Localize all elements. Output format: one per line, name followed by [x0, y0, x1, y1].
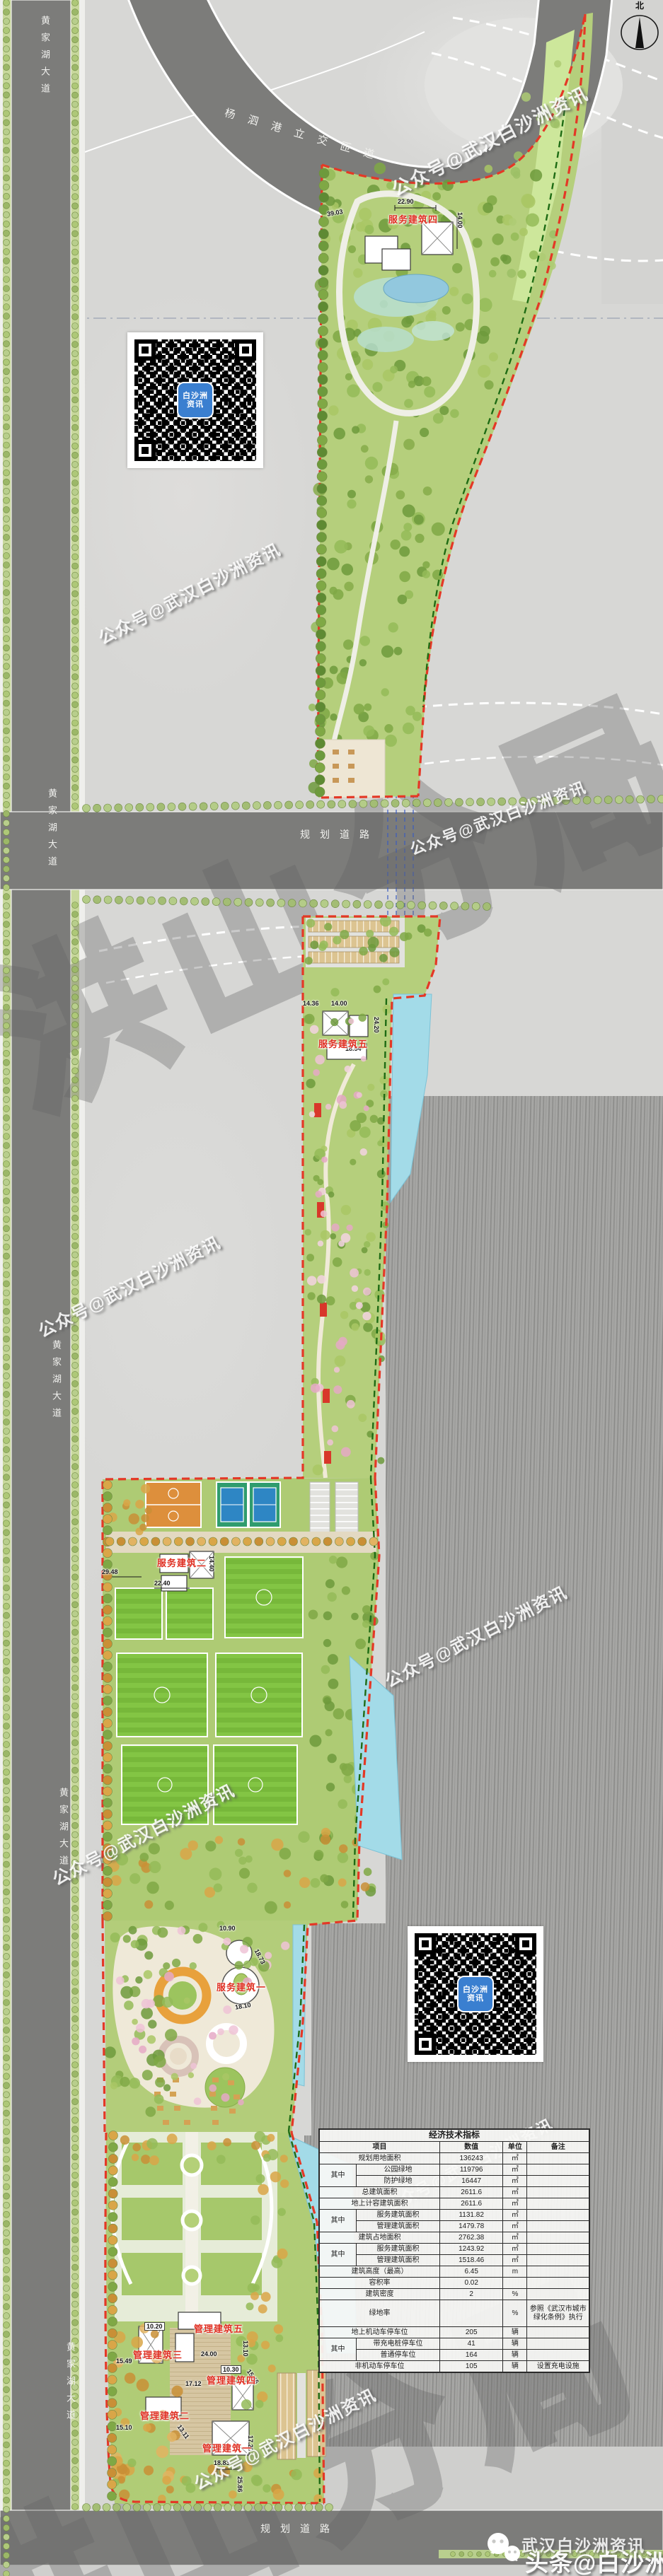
table-row: 管理建筑面积1518.46㎡	[319, 2255, 589, 2266]
dim-label: 14.00	[456, 212, 463, 228]
table-row: 其中服务建筑面积1131.82㎡	[319, 2210, 589, 2221]
table-row: 总建筑面积2611.6㎡	[319, 2187, 589, 2198]
qr-code-top: 白沙洲 资讯	[127, 332, 263, 468]
section-north-park	[309, 13, 593, 798]
dim-label: 18.83	[214, 2459, 230, 2466]
dim-label: 13.10	[242, 2341, 249, 2357]
col-header: 数值	[440, 2142, 503, 2153]
road-label-planned-2: 规划道路	[260, 2522, 340, 2536]
label-mgmt-building-1: 管理建筑一	[202, 2441, 252, 2454]
dim-label: 15.49	[116, 2358, 132, 2365]
col-header: 项目	[319, 2142, 440, 2153]
dim-label: 10.20	[144, 2322, 165, 2331]
qr-center-badge: 白沙洲 资讯	[457, 1976, 494, 2012]
col-header: 备注	[527, 2142, 589, 2153]
dim-label: 15.10	[116, 2424, 132, 2431]
qr-code-bottom: 白沙洲 资讯	[408, 1926, 543, 2062]
tip-plaza	[320, 740, 385, 798]
qr-finder-icon	[134, 339, 156, 361]
dim-label: 22.40	[154, 1580, 171, 1587]
table-row: 绿地率%参照《武汉市城市绿化条例》执行	[319, 2300, 589, 2327]
north-label: 北	[618, 1, 661, 11]
qr-finder-icon	[515, 1933, 536, 1954]
qr-badge-text: 白沙洲	[183, 392, 208, 400]
road-label-huangjiahu-4: 黄家湖大道	[57, 1788, 70, 1872]
dim-label: 24.20	[373, 1017, 380, 1033]
table-row: 地上机动车停车位205辆	[319, 2327, 589, 2338]
tennis-courts	[217, 1482, 280, 1527]
road-label-huangjiahu-5: 黄家湖大道	[64, 2342, 77, 2427]
road-label-huangjiahu-1: 黄家湖大道	[38, 16, 52, 100]
label-mgmt-building-4: 管理建筑四	[207, 2373, 256, 2386]
table-title: 经济技术指标	[319, 2129, 589, 2142]
dim-label: 17.12	[185, 2380, 202, 2387]
road-label-huangjiahu-2: 黄家湖大道	[45, 788, 59, 873]
label-service-building-2: 服务建筑二	[157, 1556, 207, 1569]
table-row: 其中公园绿地119796㎡	[319, 2164, 589, 2176]
table-row: 容积率0.02	[319, 2278, 589, 2289]
qr-finder-icon	[235, 339, 256, 361]
table-row: 建筑密度2%	[319, 2289, 589, 2300]
table-row: 其中服务建筑面积1243.92㎡	[319, 2244, 589, 2255]
pond	[384, 274, 449, 303]
qr-badge-text: 资讯	[187, 400, 204, 409]
north-compass: 北	[618, 1, 661, 55]
table-row: 建筑高度（最高）6.45m	[319, 2266, 589, 2278]
qr-badge-text: 白沙洲	[463, 1986, 488, 1994]
wechat-icon	[484, 2531, 524, 2569]
road-huangjiahu	[11, 0, 71, 2576]
table-row: 防护绿地16447㎡	[319, 2176, 589, 2187]
label-mgmt-building-2: 管理建筑二	[140, 2408, 190, 2422]
verge-right	[71, 0, 79, 2576]
qr-badge-text: 资讯	[467, 1994, 484, 2003]
col-header: 单位	[503, 2142, 527, 2153]
table-row: 建筑占地面积2762.38㎡	[319, 2232, 589, 2244]
compass-icon	[620, 11, 659, 52]
watermark-toutiao: 头条@白沙洲	[525, 2544, 663, 2576]
dim-label: 14.40	[208, 1556, 215, 1572]
master-plan-canvas: 洪山分局 洪山分局	[0, 0, 663, 2576]
indicator-table: 经济技术指标 项目 数值 单位 备注 规划用地面积136243㎡ 其中公园绿地1…	[318, 2128, 590, 2373]
dim-label: 24.00	[201, 2350, 217, 2358]
dim-label: 25.86	[236, 2476, 243, 2493]
table-row: 非机动车停车位105辆设置充电设施	[319, 2361, 589, 2373]
qr-finder-icon	[134, 440, 156, 461]
table-row: 其中带充电桩停车位41辆	[319, 2338, 589, 2350]
table-row: 管理建筑面积1479.78㎡	[319, 2221, 589, 2232]
label-mgmt-building-5: 管理建筑五	[194, 2321, 243, 2335]
dim-label: 29.48	[102, 1568, 118, 1575]
label-service-building-4: 服务建筑四	[388, 212, 438, 226]
qr-finder-icon	[415, 2034, 436, 2055]
dim-label: 22.90	[398, 198, 414, 205]
label-service-building-5: 服务建筑五	[318, 1037, 368, 1050]
qr-finder-icon	[415, 1933, 436, 1954]
table-row: 普通停车位164辆	[319, 2350, 589, 2361]
road-label-huangjiahu-3: 黄家湖大道	[50, 1340, 63, 1425]
qr-center-badge: 白沙洲 资讯	[177, 382, 214, 419]
road-label-planned-1: 规划道路	[300, 827, 379, 841]
table-row: 地上计容建筑面积2611.6㎡	[319, 2198, 589, 2210]
dim-label: 10.90	[219, 1925, 236, 1932]
dim-label: 14.36	[303, 1000, 319, 1007]
label-service-building-1: 服务建筑一	[217, 1980, 266, 1993]
dim-label: 14.00	[331, 1000, 347, 1007]
label-mgmt-building-3: 管理建筑三	[133, 2348, 183, 2361]
table-row: 规划用地面积136243㎡	[319, 2153, 589, 2164]
